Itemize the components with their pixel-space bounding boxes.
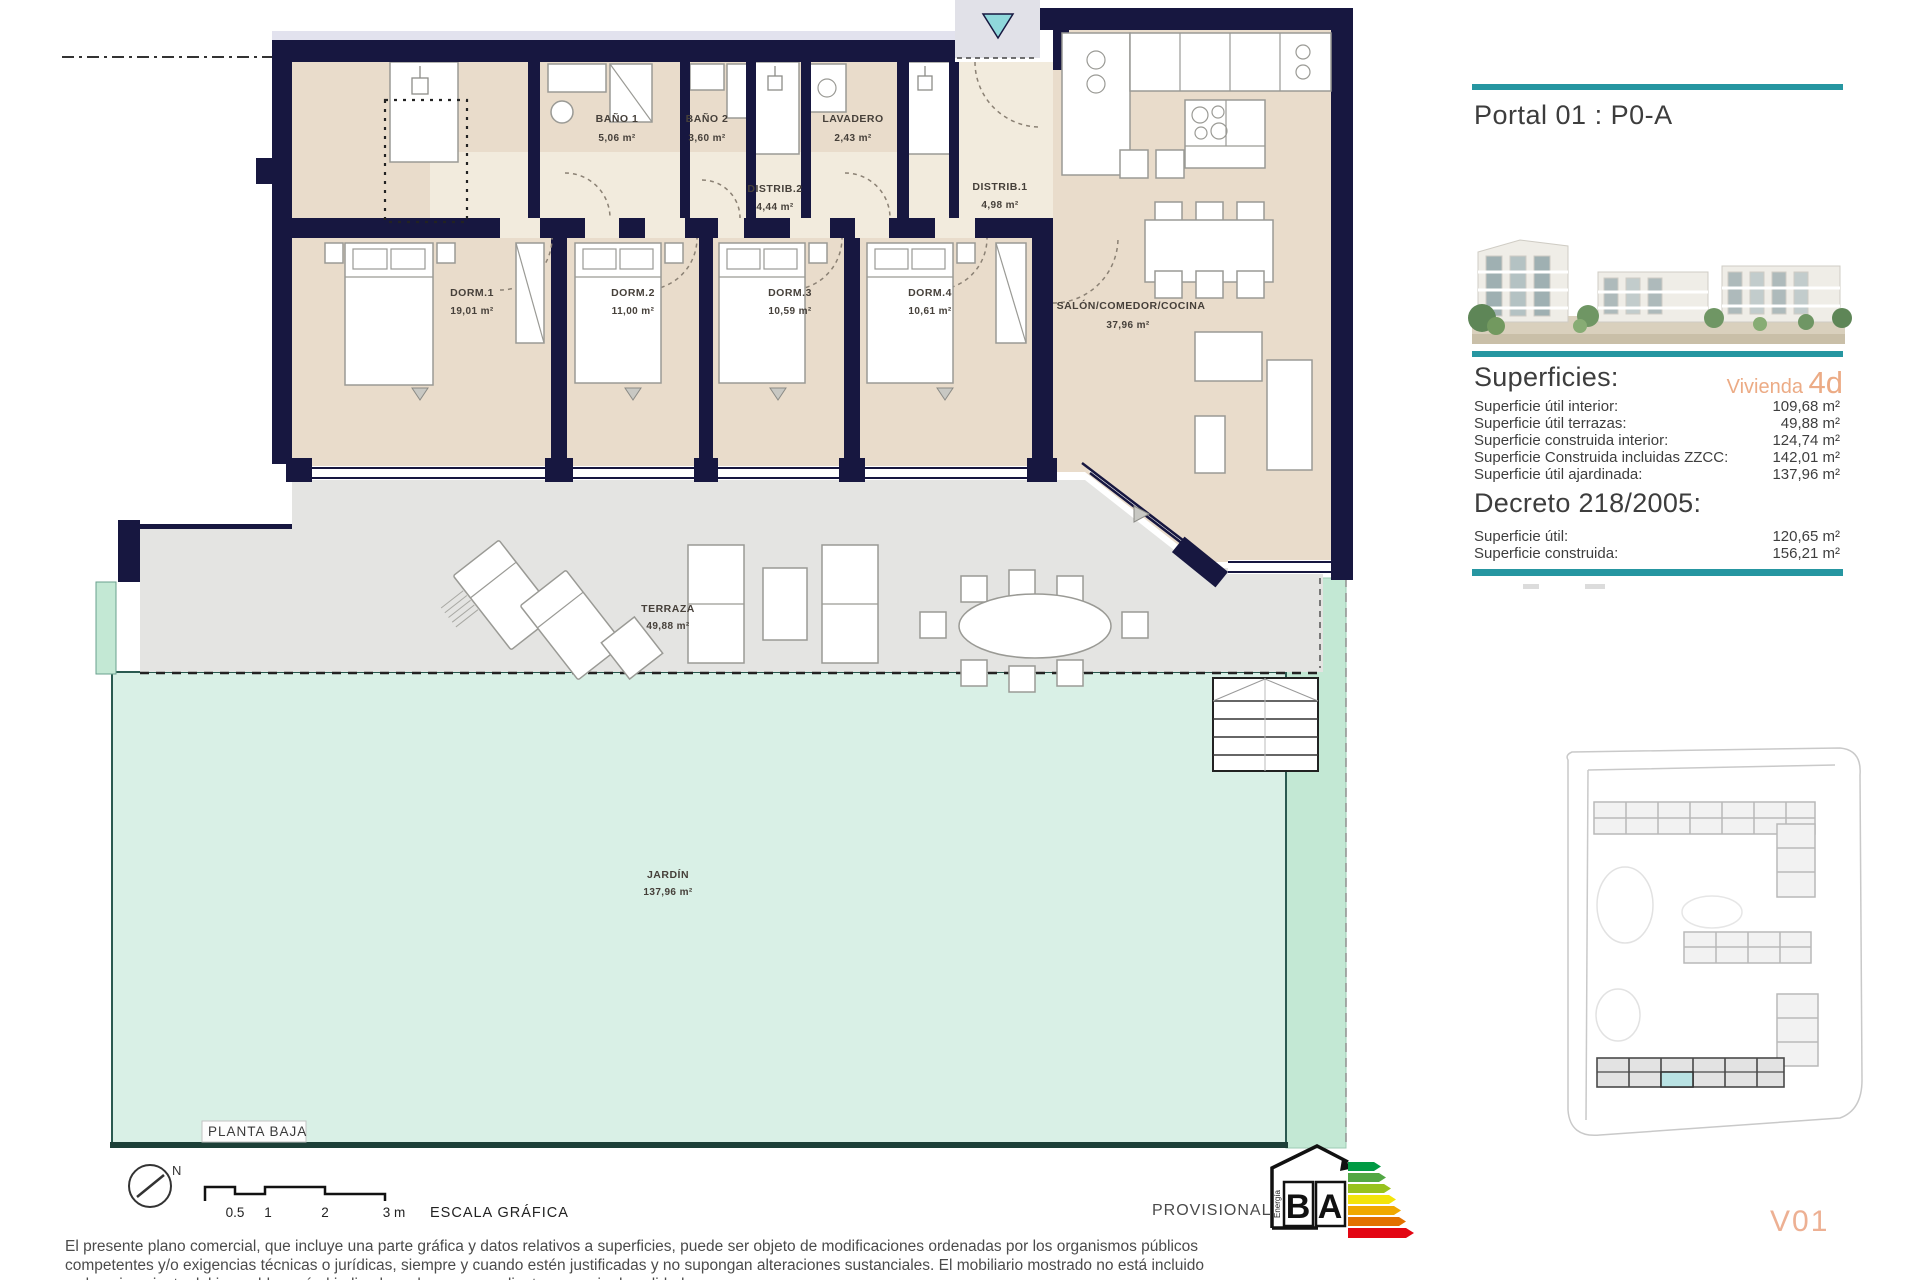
room-label-jardin: JARDÍN [647,868,689,881]
info-panel: Portal 01 : P0-A Superficies: Vivienda 4… [1472,84,1843,624]
floor-label: PLANTA BAJA [208,1124,307,1139]
scale-tick: 3 m [383,1205,406,1220]
energy-arrow-bars [1348,1162,1414,1238]
surface-value: 109,68 m² [1772,398,1840,415]
disclaimer-line: El presente plano comercial, que incluye… [65,1237,1495,1256]
scale-tick: 0.5 [226,1205,245,1220]
north-label: N [172,1163,181,1178]
room-label: BAÑO 2 [686,112,729,125]
room-area: 10,61 m² [908,306,951,317]
scale-bar: 0.5 1 2 3 m ESCALA GRÁFICA [205,1187,569,1221]
room-area: 4,98 m² [981,200,1019,211]
compass: N [129,1163,181,1207]
room-area: 3,60 m² [688,133,726,144]
room-label: DORM.1 [450,287,494,299]
room-label: DORM.2 [611,287,655,299]
energy-rating-icon: Energía Emisiones B A [1272,1146,1414,1238]
surface-label: Superficie útil interior: [1474,398,1618,415]
surface-value: 49,88 m² [1781,415,1840,432]
surface-value: 137,96 m² [1772,466,1840,483]
cropped-text-mark [1585,584,1605,589]
version-label: V01 [1770,1205,1829,1239]
portal-title: Portal 01 : P0-A [1474,100,1673,131]
surface-label: Superficie construida interior: [1474,432,1668,449]
garden-border [110,1142,1288,1148]
surface-label: Superficie útil terrazas: [1474,415,1627,432]
room-label: DORM.3 [768,287,812,299]
room-label: DORM.4 [908,287,952,299]
superficies-heading: Superficies: [1474,362,1619,393]
surface-row: Superficie útil terrazas: 49,88 m² [1474,415,1840,432]
site-key-plan [1567,748,1862,1135]
surface-row: Superficie útil interior: 109,68 m² [1474,398,1840,415]
room-label: DISTRIB.2 [747,183,802,195]
vivienda-code: 4d [1809,365,1843,400]
disclaimer-line: competentes y/o exigencias técnicas o ju… [65,1256,1495,1275]
decreto-row: Superficie útil: 120,65 m² [1474,528,1840,545]
site-plan-current-block [1597,1058,1784,1087]
entrance-vestibule [955,0,1040,58]
room-area-jardin: 137,96 m² [643,887,692,898]
decreto-label: Superficie construida: [1474,545,1618,562]
surface-row: Superficie construida interior: 124,74 m… [1474,432,1840,449]
surface-value: 142,01 m² [1772,449,1840,466]
room-label-terraza: TERRAZA [641,603,695,615]
plan-sheet: JARDÍN 137,96 m² PLANTA BAJA [0,0,1920,1280]
cropped-text-mark [1523,584,1539,589]
room-area-terraza: 49,88 m² [646,621,689,632]
scale-caption: ESCALA GRÁFICA [430,1204,569,1221]
room-area: 2,43 m² [834,133,872,144]
room-area: 4,44 m² [756,202,794,213]
vivienda-label: Vivienda [1727,376,1803,398]
room-label: BAÑO 1 [596,112,639,125]
decreto-heading: Decreto 218/2005: [1474,488,1701,519]
divider-bar-bottom [1472,569,1843,576]
room-area: 37,96 m² [1106,320,1149,331]
divider-bar-top [1472,84,1843,90]
divider-bar-middle [1472,351,1843,357]
decreto-row: Superficie construida: 156,21 m² [1474,545,1840,562]
surface-row: Superficie útil ajardinada: 137,96 m² [1474,466,1840,483]
legal-disclaimer: El presente plano comercial, que incluye… [65,1237,1495,1280]
room-label: SALÓN/COMEDOR/COCINA [1057,299,1206,312]
room-label: DISTRIB.1 [972,181,1027,193]
vivienda-tag: Vivienda 4d [1727,365,1843,401]
room-area: 11,00 m² [612,306,655,317]
surface-label: Superficie Construida incluidas ZZCC: [1474,449,1728,466]
decreto-value: 156,21 m² [1772,545,1840,562]
surface-value: 124,74 m² [1772,432,1840,449]
energy-letter-a: A [1318,1188,1343,1226]
garden-stairs [1213,678,1318,771]
scale-tick: 1 [264,1205,272,1220]
surface-label: Superficie útil ajardinada: [1474,466,1642,483]
room-area: 19,01 m² [450,306,493,317]
room-area: 5,06 m² [598,133,636,144]
decreto-label: Superficie útil: [1474,528,1568,545]
scale-tick: 2 [321,1205,329,1220]
room-label: LAVADERO [822,113,883,125]
energy-letter-b: B [1286,1188,1311,1226]
disclaimer-line: y el equipamiento del inmueble será el i… [65,1275,1495,1280]
site-plan-highlight-unit [1661,1072,1693,1087]
room-area: 10,59 m² [768,306,811,317]
decreto-value: 120,65 m² [1772,528,1840,545]
surface-row: Superficie Construida incluidas ZZCC: 14… [1474,449,1840,466]
provisional-label: PROVISIONAL [1152,1202,1271,1220]
energy-axis-label: Energía [1273,1189,1282,1218]
